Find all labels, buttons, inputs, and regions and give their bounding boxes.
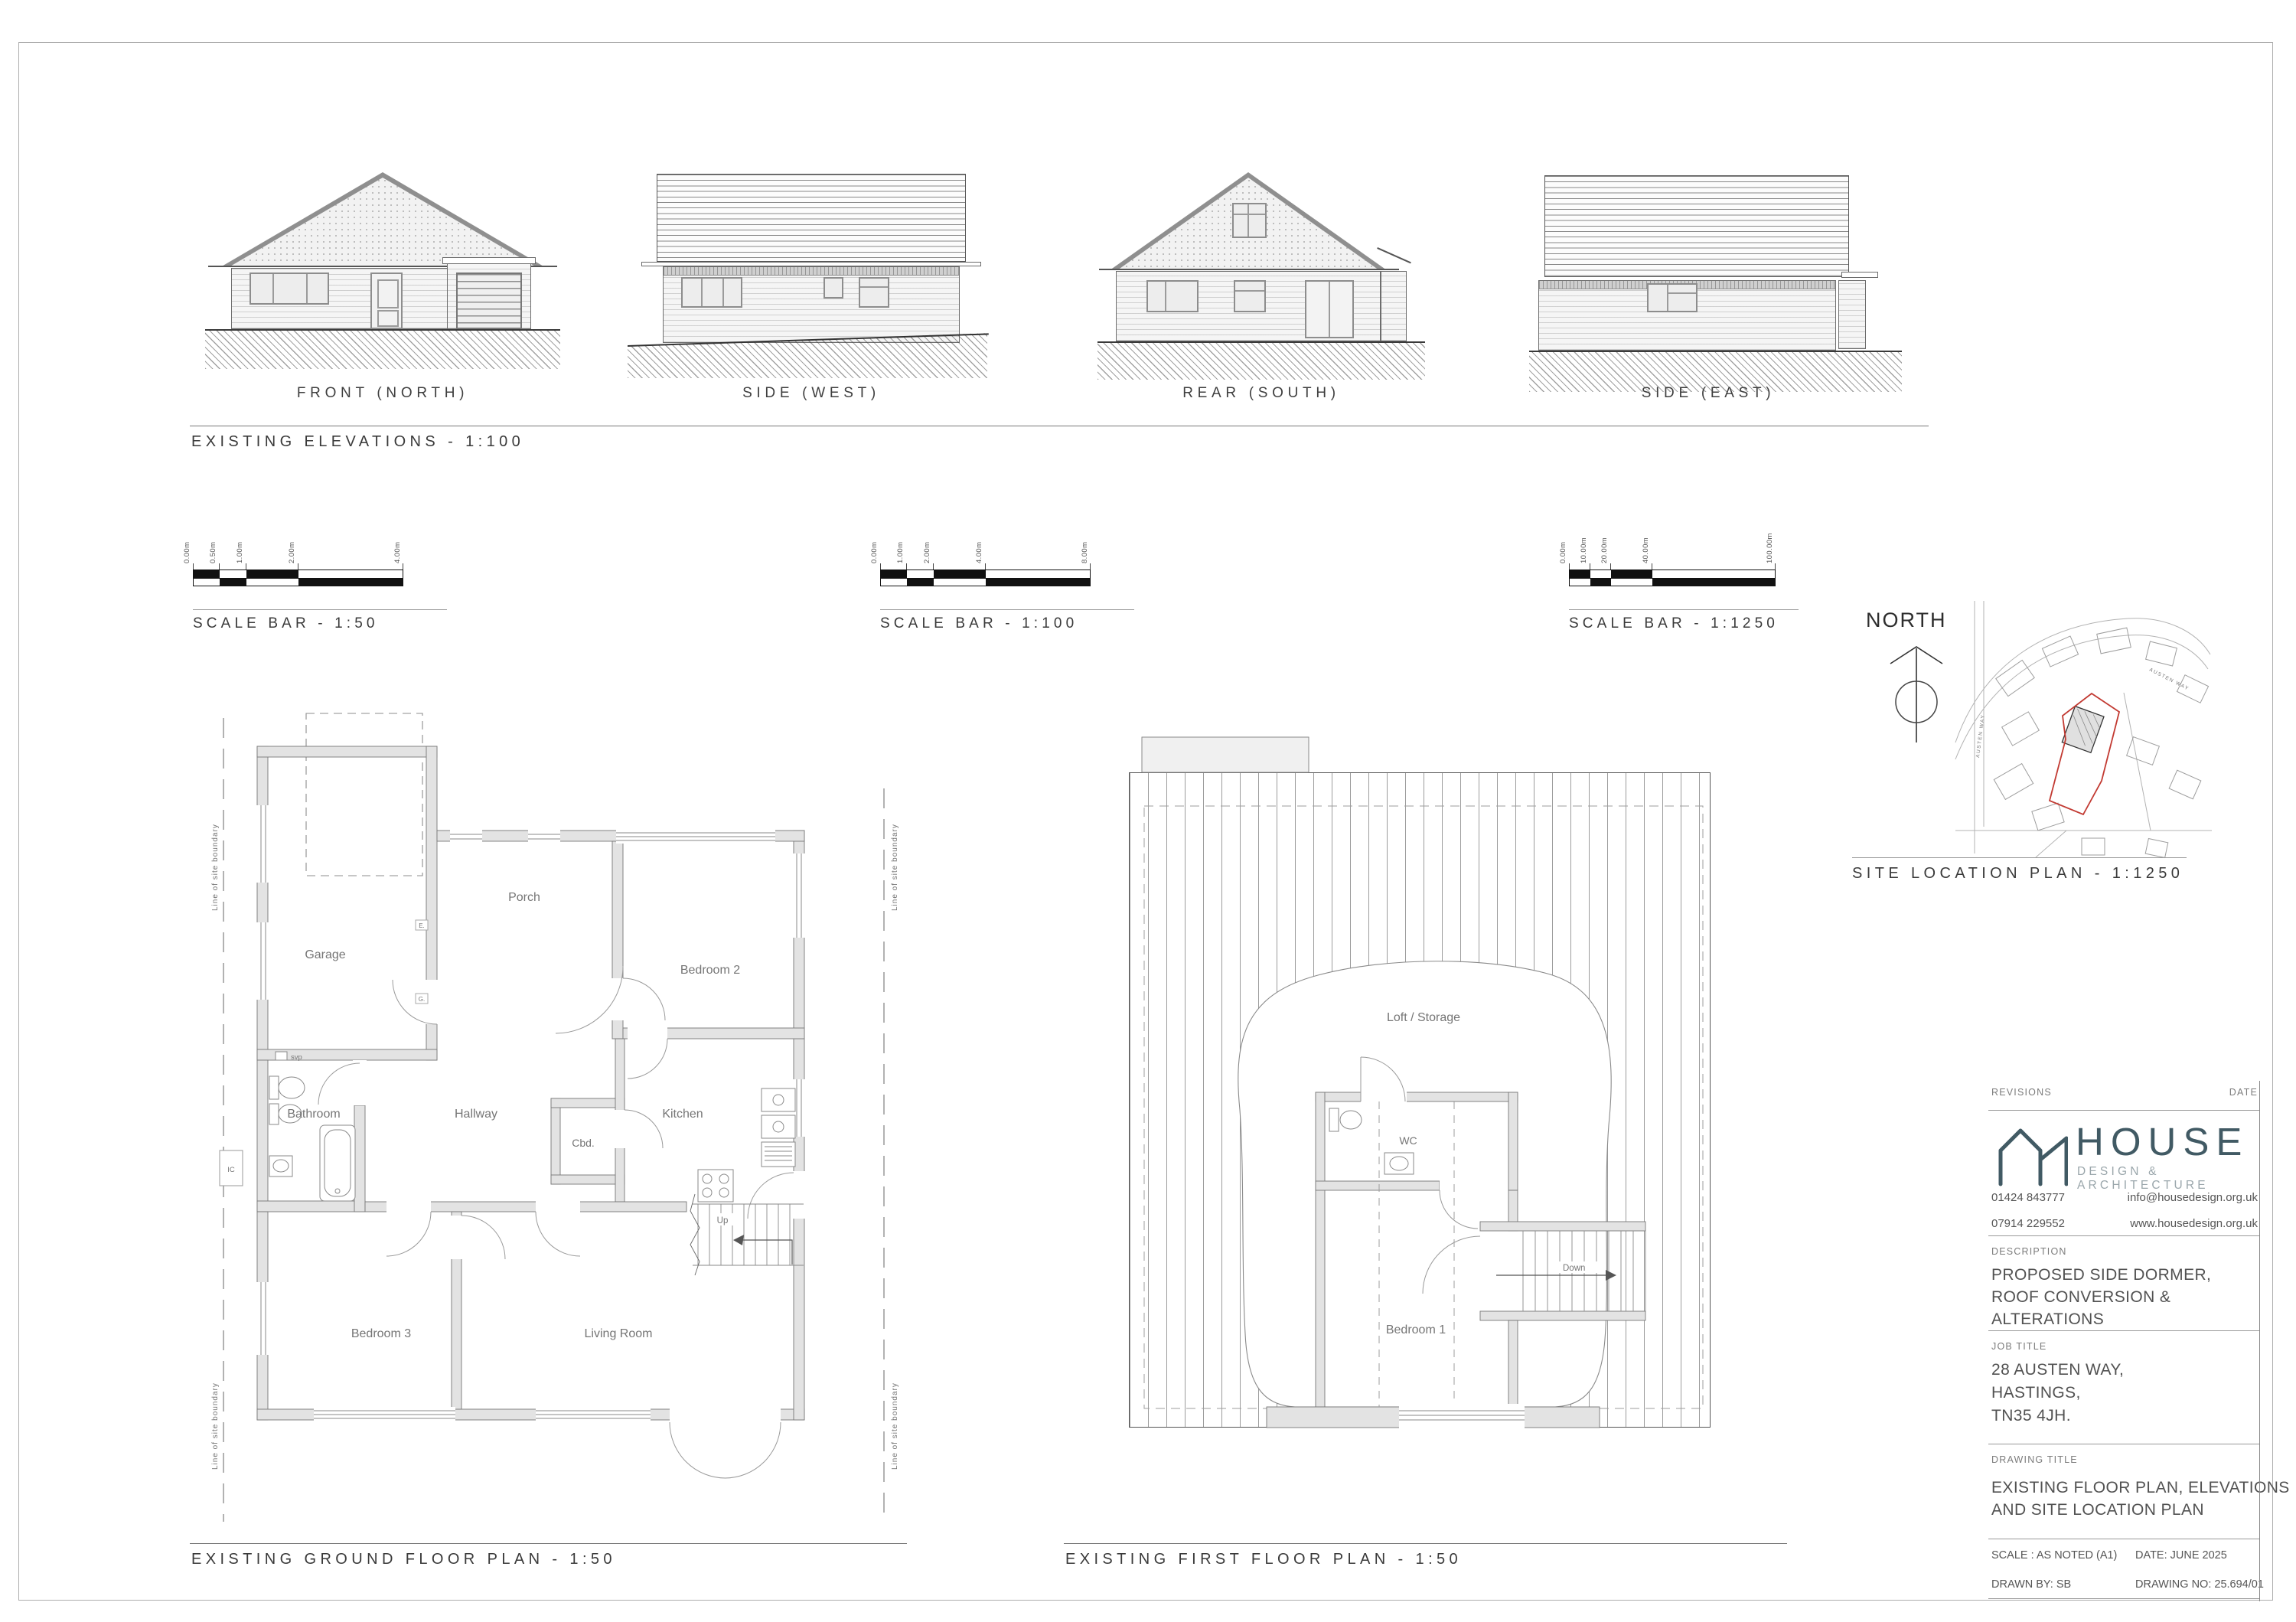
first-floor-window (1399, 1404, 1525, 1429)
scale-bar-label: SCALE BAR - 1:50 (193, 615, 379, 632)
room-label-living-room: Living Room (585, 1327, 653, 1340)
tick-label: 4.00m (393, 542, 402, 563)
tick-label: 1.00m (236, 542, 244, 563)
room-label-bedroom3: Bedroom 3 (351, 1327, 411, 1340)
email: info@housedesign.org.uk (2066, 1191, 2258, 1204)
room-label-bedroom2: Bedroom 2 (680, 964, 740, 977)
street-name-label: AUSTEN WAY (2148, 667, 2190, 692)
boundary-label: Line of site boundary (211, 824, 220, 911)
drawing-title-line1: EXISTING FLOOR PLAN, ELEVATIONS (1991, 1477, 2290, 1500)
front-ground-hatch (205, 329, 560, 369)
ground-floor-title: EXISTING GROUND FLOOR PLAN - 1:50 (191, 1551, 616, 1568)
east-pillar (1838, 280, 1866, 349)
site-house-footprint (2062, 707, 2104, 753)
room-label-garage: Garage (305, 948, 345, 961)
rear-window-1 (1146, 280, 1199, 312)
date-column-label: DATE (2190, 1087, 2258, 1098)
phone-2: 07914 229552 (1991, 1217, 2065, 1230)
ground-floor-plan: Line of site boundary Line of site bound… (199, 712, 903, 1542)
title-block-right-border (2259, 1081, 2260, 1601)
down-label: Down (1563, 1264, 1585, 1273)
job-title-label: JOB TITLE (1991, 1341, 2047, 1352)
first-floor-underline (1064, 1543, 1787, 1544)
west-window-1 (681, 277, 742, 308)
caption-front-north: FRONT (NORTH) (297, 385, 468, 402)
caption-rear-south: REAR (SOUTH) (1182, 385, 1340, 402)
tick-label: 0.00m (870, 542, 879, 563)
street-name-label: AUSTEN WAY (1975, 714, 1986, 759)
phone-1: 01424 843777 (1991, 1191, 2065, 1204)
room-label-kitchen: Kitchen (662, 1108, 703, 1121)
room-label-hallway: Hallway (455, 1108, 497, 1121)
elevations-underline (190, 426, 1929, 426)
up-label: Up (717, 1216, 729, 1225)
ic-label: IC (227, 1166, 235, 1174)
boundary-label: Line of site boundary (891, 1382, 899, 1470)
room-label-loft: Loft / Storage (1387, 1011, 1460, 1024)
front-door (370, 273, 403, 329)
drawing-no-value: DRAWING NO: 25.694/01 (2135, 1578, 2264, 1591)
east-roof (1544, 175, 1849, 277)
scale-bar (1569, 569, 1776, 586)
description-label: DESCRIPTION (1991, 1246, 2067, 1257)
caption-side-east: SIDE (EAST) (1642, 385, 1776, 402)
boundary-label: Line of site boundary (891, 824, 899, 911)
front-garage-door (456, 273, 522, 329)
scale-bar (880, 569, 1091, 586)
site-plan-title: SITE LOCATION PLAN - 1:1250 (1852, 865, 2183, 883)
front-window (249, 273, 329, 305)
room-label-porch: Porch (508, 891, 540, 904)
tick-label: 4.00m (975, 542, 983, 563)
elevation-side-west (635, 172, 987, 379)
bathroom-fixtures (269, 1076, 355, 1201)
west-window-3 (859, 277, 889, 308)
job-title-line2: HASTINGS, (1991, 1382, 2081, 1405)
tick-label: 0.50m (209, 542, 217, 563)
rear-leanto-wall (1381, 271, 1407, 341)
svp-marker (276, 1052, 287, 1060)
east-window (1647, 283, 1698, 312)
brand-subtitle: DESIGN & ARCHITECTURE (2077, 1165, 2296, 1193)
east-fascia-return (1841, 272, 1878, 278)
meter-g-label: G. (419, 996, 425, 1003)
ground-floor-underline (190, 1543, 907, 1544)
house-logo-icon (1991, 1119, 2068, 1190)
rear-ground-hatch (1097, 341, 1425, 380)
tick-label: 0.00m (183, 542, 191, 563)
tick-label: 20.00m (1600, 537, 1609, 563)
description-value: PROPOSED SIDE DORMER, ROOF CONVERSION & … (1991, 1265, 2255, 1331)
site-plan-underline (1852, 857, 2187, 858)
tick-label: 10.00m (1580, 537, 1588, 563)
drawing-title-line2: AND SITE LOCATION PLAN (1991, 1500, 2204, 1522)
rear-window-2 (1234, 280, 1266, 312)
garage-canopy-dashed (306, 713, 422, 876)
room-label-cbd: Cbd. (572, 1137, 595, 1149)
scale-bar-1-1250: 0.00m 10.00m 20.00m 40.00m 100.00m SCALE… (1569, 536, 1814, 635)
west-window-2 (823, 277, 843, 299)
drawing-title-label: DRAWING TITLE (1991, 1454, 2078, 1465)
website: www.housedesign.org.uk (2066, 1217, 2258, 1230)
room-label-bathroom: Bathroom (287, 1108, 340, 1121)
elevation-side-east (1538, 172, 1894, 387)
date-value: DATE: JUNE 2025 (2135, 1549, 2227, 1562)
elevations-section-title: EXISTING ELEVATIONS - 1:100 (191, 433, 524, 451)
tick-label: 0.00m (1559, 542, 1567, 563)
scale-bar (193, 569, 403, 586)
scale-bar-1-100: 0.00m 1.00m 2.00m 4.00m 8.00m SCALE BAR … (880, 536, 1144, 635)
walls (257, 746, 804, 1420)
room-label-bedroom1: Bedroom 1 (1386, 1323, 1446, 1336)
meter-e-label: E. (419, 922, 425, 929)
scale-value: SCALE : AS NOTED (A1) (1991, 1549, 2117, 1562)
elevation-front-north (220, 172, 545, 373)
west-roof (657, 174, 966, 262)
tick-label: 40.00m (1642, 537, 1650, 563)
kitchen-fixtures (698, 1088, 795, 1202)
brand-name: HOUSE (2076, 1119, 2249, 1164)
rear-gable-window (1232, 203, 1267, 238)
north-label: NORTH (1866, 609, 1947, 632)
rear-french-doors (1305, 280, 1354, 338)
rear-leanto-roofline (1377, 247, 1411, 263)
job-title-line1: 28 AUSTEN WAY, (1991, 1359, 2124, 1382)
svp-label: svp (291, 1053, 302, 1062)
first-floor-title: EXISTING FIRST FLOOR PLAN - 1:50 (1065, 1551, 1462, 1568)
scale-bar-1-50: 0.00m 0.50m 1.00m 2.00m 4.00m SCALE BAR … (193, 536, 457, 635)
chimney (1142, 737, 1309, 772)
room-label-wc: WC (1399, 1134, 1417, 1147)
tick-label: 2.00m (288, 542, 296, 563)
front-gable-render (229, 178, 536, 267)
tick-label: 2.00m (923, 542, 931, 563)
drawn-by-value: DRAWN BY: SB (1991, 1578, 2071, 1591)
revisions-label: REVISIONS (1991, 1087, 2052, 1098)
drawing-sheet: FRONT (NORTH) SIDE (WEST) REAR (SOUTH) S… (0, 0, 2296, 1622)
scale-bar-label: SCALE BAR - 1:1250 (1569, 615, 1779, 632)
elevation-rear-south (1110, 172, 1412, 376)
caption-side-west: SIDE (WEST) (742, 385, 880, 402)
first-floor-plan: Down Loft / Storage WC Bedroom 1 (1117, 727, 1730, 1493)
site-location-map: AUSTEN WAY AUSTEN WAY (1952, 597, 2216, 861)
stairs-up (690, 1194, 804, 1275)
tick-label: 8.00m (1081, 542, 1089, 563)
tick-label: 1.00m (896, 542, 905, 563)
boundary-label: Line of site boundary (211, 1382, 220, 1470)
tick-label: 100.00m (1766, 533, 1774, 563)
job-title-line3: TN35 4JH. (1991, 1405, 2071, 1428)
scale-bar-label: SCALE BAR - 1:100 (880, 615, 1078, 632)
